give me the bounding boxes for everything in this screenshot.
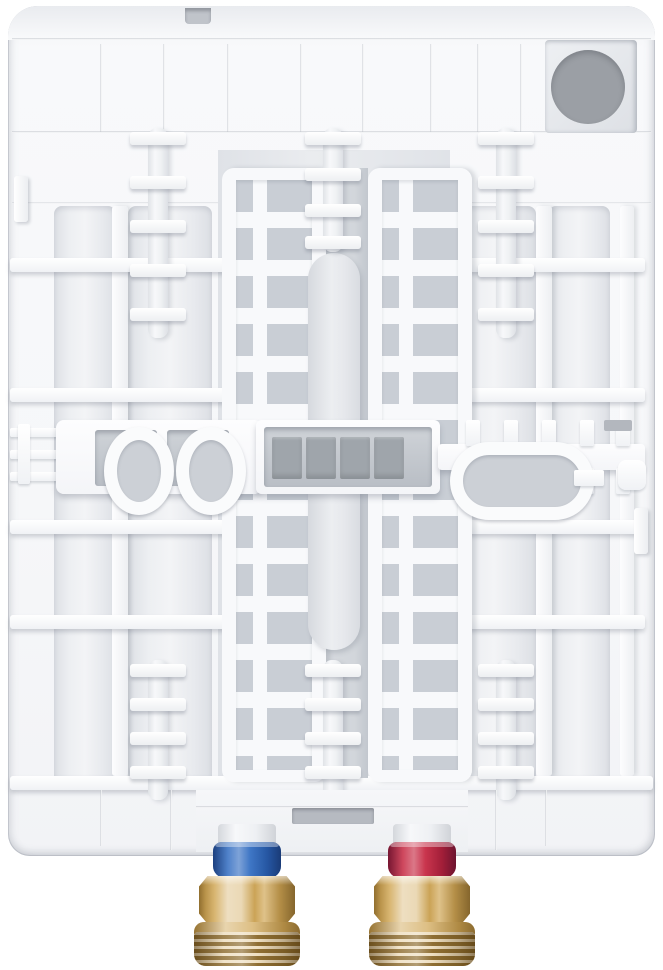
panel-seam: [300, 44, 302, 132]
rail-end-cap: [618, 460, 646, 490]
post-shaft: [496, 128, 516, 338]
post-flange: [478, 308, 534, 321]
product-photo: [0, 0, 663, 970]
post-flange: [478, 664, 534, 677]
panel-seam: [430, 44, 432, 132]
terminal-pin: [272, 437, 302, 479]
comb-spine: [18, 424, 30, 484]
post-shaft: [323, 128, 343, 252]
comb-tooth: [580, 420, 594, 446]
bottom-seam: [170, 790, 172, 850]
mount-post: [130, 660, 186, 800]
post-flange: [478, 220, 534, 233]
keyhole-ring: [176, 427, 246, 515]
panel-seam: [520, 44, 522, 132]
keyhole-ring: [104, 427, 174, 515]
post-shaft: [496, 660, 516, 800]
mount-post: [305, 128, 361, 252]
keyhole-slot-ring: [450, 442, 594, 520]
side-tab-left: [14, 176, 28, 222]
post-flange: [478, 132, 534, 145]
post-flange: [130, 264, 186, 277]
cross-rib: [10, 615, 232, 629]
post-flange: [130, 766, 186, 779]
bottom-seam: [100, 790, 102, 846]
post-flange: [130, 732, 186, 745]
union-nut: [199, 876, 295, 924]
post-flange: [130, 308, 186, 321]
post-flange: [305, 664, 361, 677]
mount-post: [305, 660, 361, 800]
terminal-pin: [340, 437, 370, 479]
threaded-plug: [194, 932, 300, 966]
post-flange: [130, 220, 186, 233]
post-flange: [130, 664, 186, 677]
bottom-seam: [545, 790, 547, 846]
mount-post: [478, 128, 534, 338]
post-flange: [130, 176, 186, 189]
post-flange: [305, 132, 361, 145]
post-flange: [305, 732, 361, 745]
post-shaft: [148, 128, 168, 338]
bottom-seam: [495, 790, 497, 850]
bottom-vent-slot: [292, 808, 374, 824]
cross-rib: [10, 258, 232, 272]
cable-gland-hole: [551, 50, 625, 124]
cold-ring: [213, 842, 281, 878]
post-shaft: [148, 660, 168, 800]
comb-tooth: [466, 420, 480, 446]
post-shaft: [323, 660, 343, 800]
post-flange: [305, 766, 361, 779]
post-flange: [130, 698, 186, 711]
cross-rib: [10, 520, 232, 534]
panel-seam: [477, 44, 479, 132]
panel-seam: [100, 44, 102, 132]
mount-post: [478, 660, 534, 800]
post-flange: [478, 698, 534, 711]
panel-seam: [227, 44, 229, 132]
terminal-pin: [374, 437, 404, 479]
post-flange: [305, 168, 361, 181]
panel-seam: [163, 44, 165, 132]
top-notch: [185, 8, 211, 24]
union-nut: [374, 876, 470, 924]
post-flange: [305, 236, 361, 249]
cross-rib: [10, 388, 232, 402]
threaded-plug: [369, 932, 475, 966]
post-flange: [305, 204, 361, 217]
post-flange: [478, 732, 534, 745]
terminal-pin: [306, 437, 336, 479]
panel-seam: [362, 44, 364, 132]
housing-top-face: [8, 6, 655, 40]
post-flange: [478, 766, 534, 779]
post-flange: [305, 698, 361, 711]
post-flange: [478, 264, 534, 277]
hot-ring: [388, 842, 456, 878]
post-flange: [130, 132, 186, 145]
clip-stub: [574, 470, 604, 486]
mount-post: [130, 128, 186, 338]
clip-notch: [604, 420, 632, 431]
side-tab-right: [634, 508, 648, 554]
post-flange: [478, 176, 534, 189]
